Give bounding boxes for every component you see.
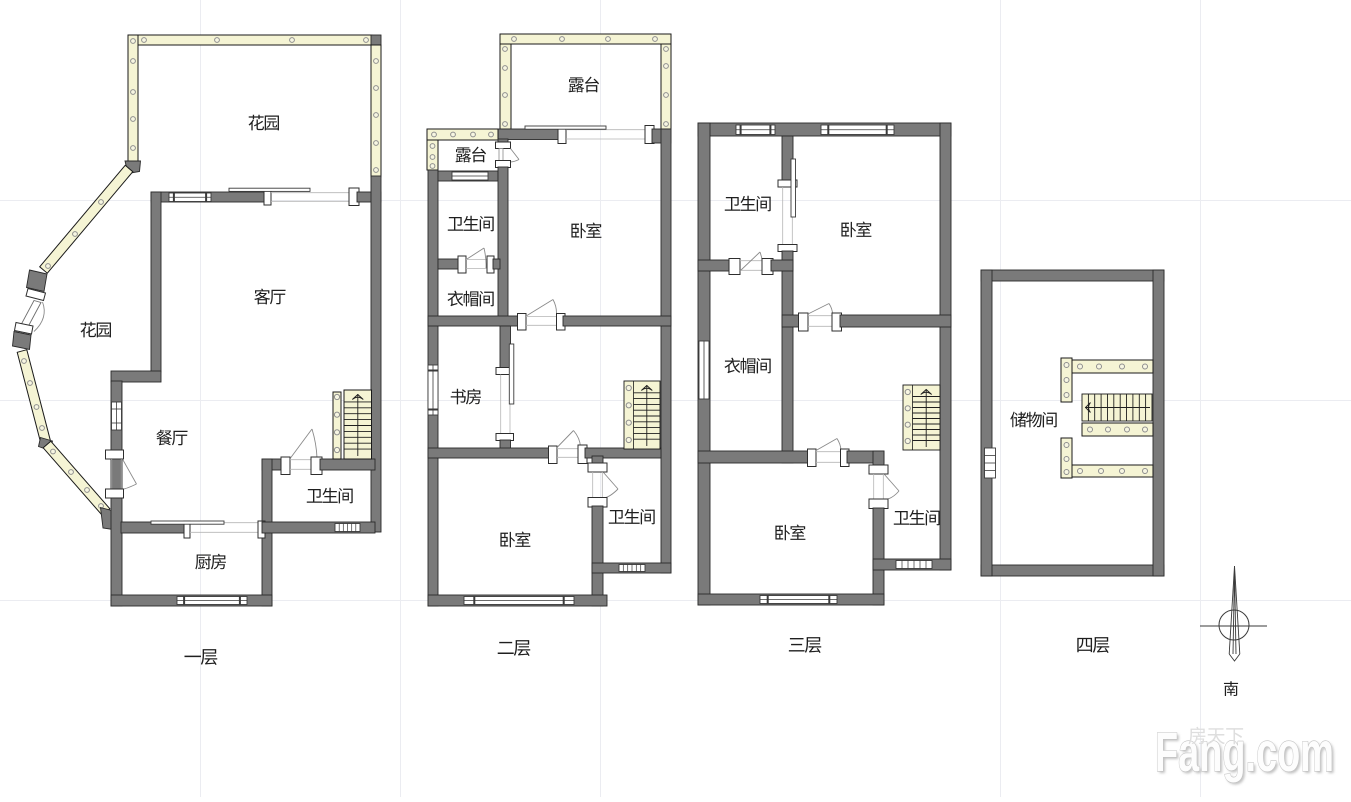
svg-text:Fang.com: Fang.com <box>1155 720 1334 783</box>
